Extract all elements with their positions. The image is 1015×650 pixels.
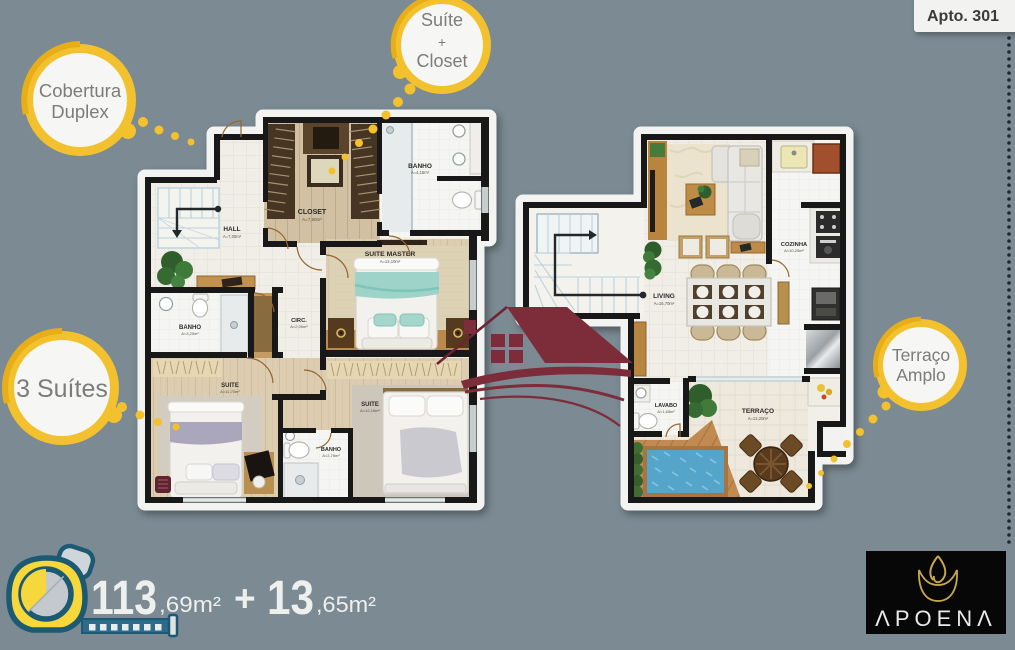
svg-text:Suíte: Suíte	[421, 10, 463, 30]
svg-text:,69m²: ,69m²	[159, 592, 221, 617]
svg-text:A=15,70m²: A=15,70m²	[654, 301, 675, 306]
svg-text:+: +	[438, 34, 446, 50]
svg-text:Amplo: Amplo	[896, 365, 946, 385]
svg-text:,65m²: ,65m²	[316, 592, 376, 617]
svg-text:A=7,50m²: A=7,50m²	[302, 217, 322, 222]
svg-text:Duplex: Duplex	[51, 101, 109, 122]
svg-text:HALL: HALL	[223, 226, 240, 233]
svg-text:A=12,10m²: A=12,10m²	[380, 259, 401, 264]
svg-text:A=7,00m²: A=7,00m²	[223, 234, 242, 239]
svg-text:Closet: Closet	[416, 51, 467, 71]
svg-text:+: +	[234, 578, 256, 619]
svg-text:Apto. 301: Apto. 301	[927, 8, 999, 25]
svg-text:13: 13	[267, 572, 314, 625]
svg-text:A=4,15m²: A=4,15m²	[411, 170, 430, 175]
svg-text:CLOSET: CLOSET	[298, 209, 327, 216]
svg-text:A=12,20m²: A=12,20m²	[748, 416, 769, 421]
svg-text:Terraço: Terraço	[892, 345, 950, 365]
svg-text:A=1,60m²: A=1,60m²	[657, 409, 675, 414]
svg-text:LIVING: LIVING	[653, 293, 675, 300]
svg-text:3 Suítes: 3 Suítes	[16, 375, 108, 403]
svg-text:A=2,00m²: A=2,00m²	[290, 324, 308, 329]
svg-text:Cobertura: Cobertura	[39, 80, 122, 101]
svg-text:A=10,25m²: A=10,25m²	[784, 248, 804, 253]
svg-text:ΛPOENΛ: ΛPOENΛ	[875, 606, 997, 631]
svg-text:A=3,20m²: A=3,20m²	[181, 331, 199, 336]
svg-text:113: 113	[91, 572, 157, 625]
svg-text:SUITE MASTER: SUITE MASTER	[365, 251, 416, 258]
svg-text:A=11,70m²: A=11,70m²	[220, 389, 240, 394]
svg-text:BANHO: BANHO	[408, 163, 432, 170]
svg-text:A=12,15m²: A=12,15m²	[360, 408, 380, 413]
svg-text:TERRAÇO: TERRAÇO	[742, 408, 774, 415]
svg-text:A=2,75m²: A=2,75m²	[322, 453, 340, 458]
